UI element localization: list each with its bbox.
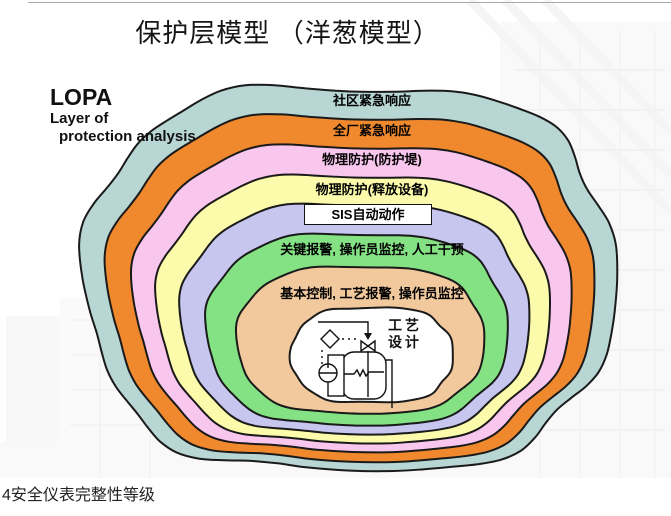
- footer-caption: 4安全仪表完整性等级: [2, 481, 155, 505]
- layer-label-physical-protection-relief: 物理防护(释放设备): [62, 179, 671, 198]
- process-design-line1: 工艺: [388, 317, 422, 334]
- layer-label-plant-emergency-response: 全厂紧急响应: [62, 120, 671, 139]
- page-title: 保护层模型 （洋葱模型）: [0, 13, 575, 50]
- layer-label-critical-alarm: 关键报警, 操作员监控, 人工干预: [62, 239, 671, 258]
- slide: 保护层模型 （洋葱模型） LOPA Layer of protection an…: [0, 0, 671, 516]
- process-design-label: 工艺 设计: [388, 317, 422, 351]
- layer-label-basic-control: 基本控制, 工艺报警, 操作员监控: [62, 283, 671, 302]
- vessel: [342, 352, 386, 399]
- layer-label-sis-automatic-action: SIS自动动作: [304, 204, 432, 225]
- process-design-line2: 设计: [388, 334, 422, 351]
- onion-diagram: [0, 0, 671, 516]
- layer-label-physical-protection-dike: 物理防护(防护堤): [62, 149, 671, 168]
- layer-label-community-emergency-response: 社区紧急响应: [62, 90, 671, 109]
